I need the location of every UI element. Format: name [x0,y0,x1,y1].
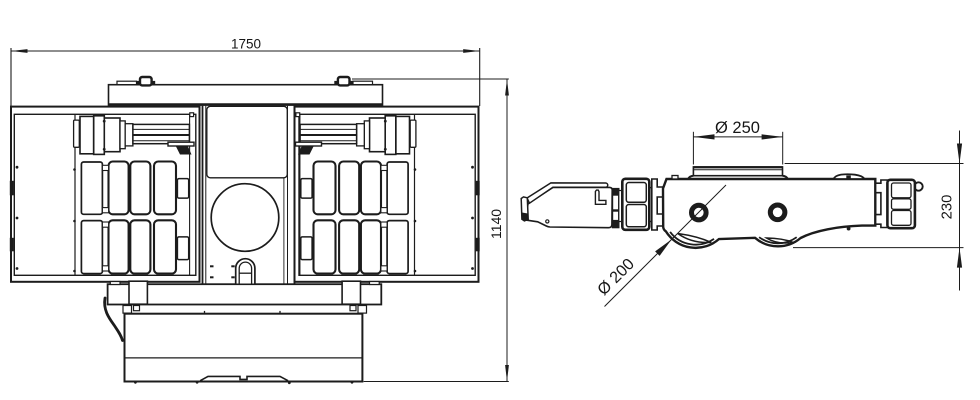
svg-text:1140: 1140 [488,209,504,239]
svg-text:Ø 250: Ø 250 [715,119,760,137]
svg-text:230: 230 [940,195,956,220]
svg-text:1750: 1750 [231,37,261,52]
svg-text:Ø 200: Ø 200 [594,255,638,299]
